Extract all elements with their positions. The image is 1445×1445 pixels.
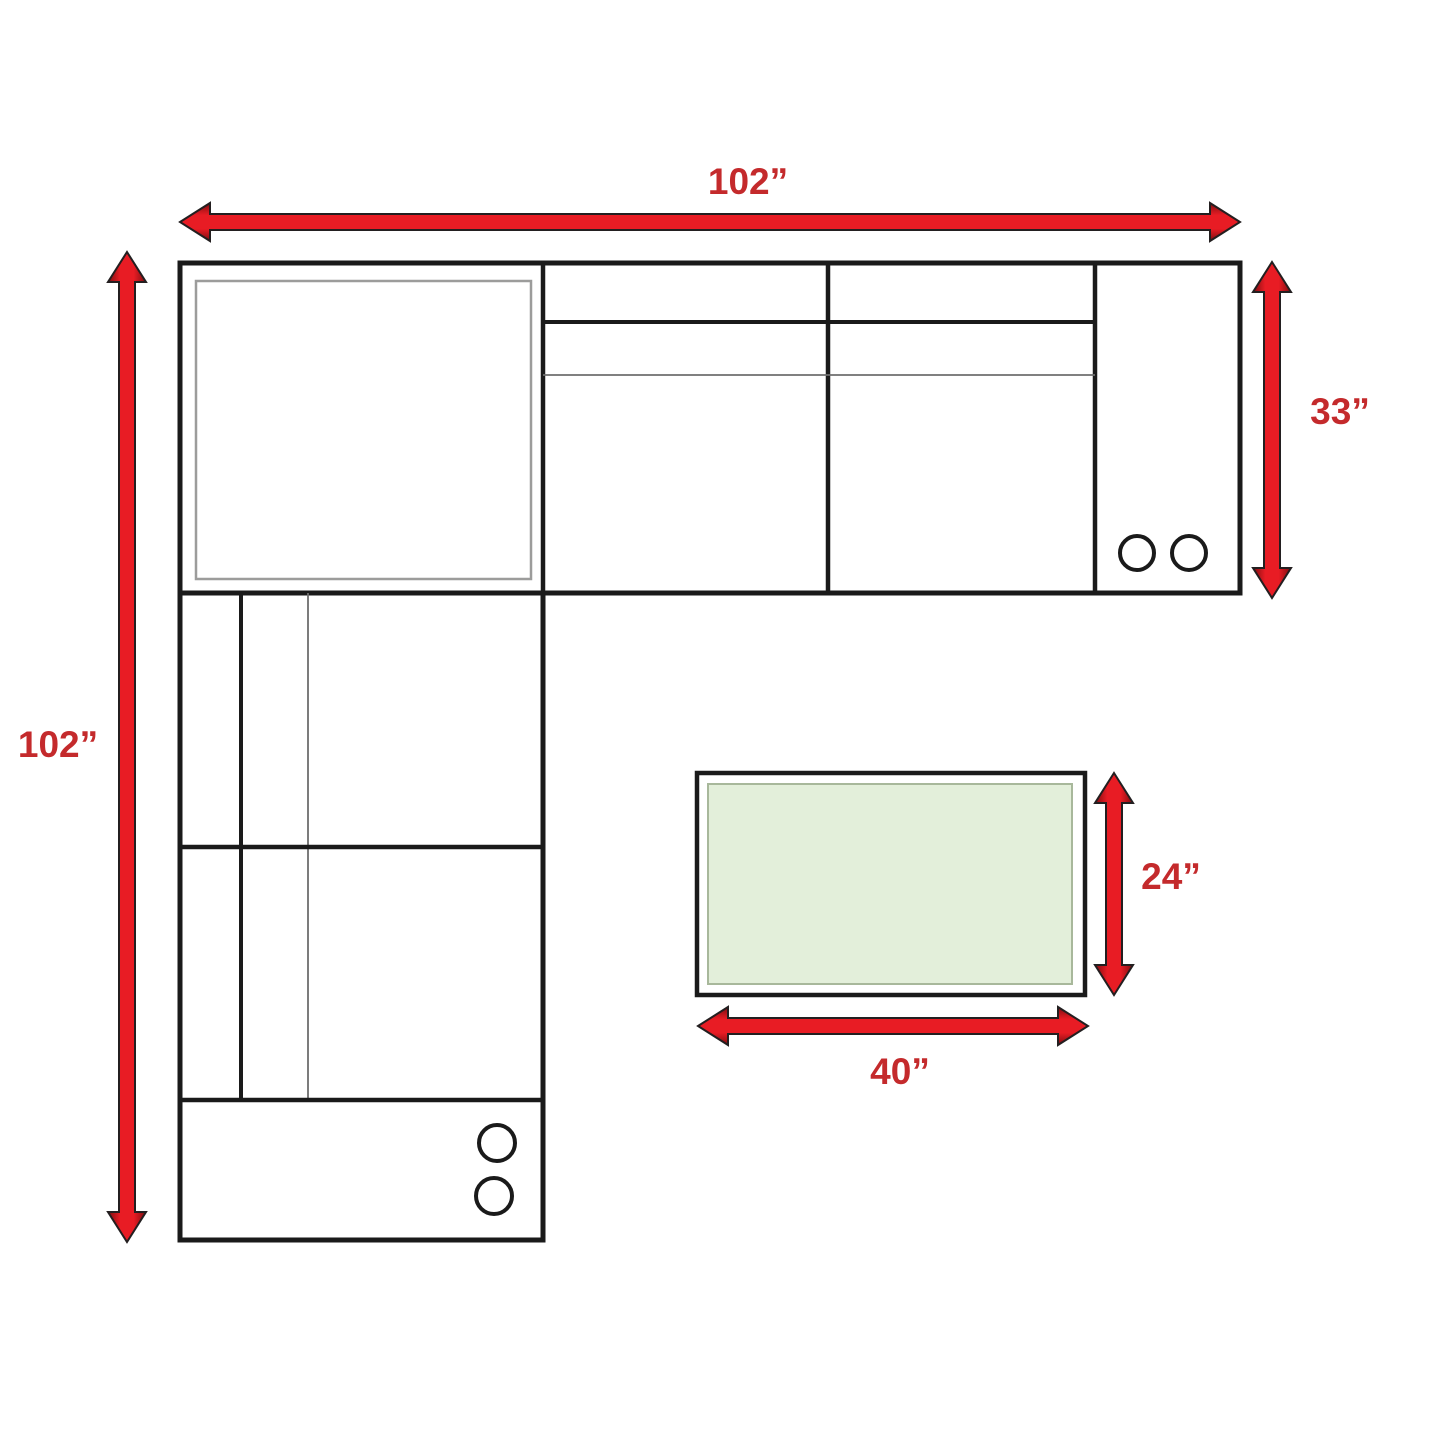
depth-dimension-arrow-icon [108,252,146,1242]
sectional-dimension-diagram: 102” 102” 33” 24” 40” [0,0,1445,1445]
table-depth-label: 24” [1141,856,1201,897]
diagram-canvas: 102” 102” 33” 24” 40” [0,0,1445,1445]
cup-holder-icon [476,1178,512,1214]
sectional-top-section [180,263,1240,593]
side-depth-dimension-arrow-icon [1253,262,1291,598]
sectional-side-depth-label: 33” [1310,391,1370,432]
sectional-sofa [180,263,1240,1240]
width-dimension-arrow-icon [180,203,1240,241]
cup-holder-icon [1120,536,1154,570]
sectional-width-label: 102” [708,161,788,202]
coffee-table [697,773,1085,995]
cup-holder-icon [479,1125,515,1161]
cup-holder-icon [1172,536,1206,570]
table-width-label: 40” [870,1051,930,1092]
sectional-depth-label: 102” [18,724,98,765]
coffee-table-top-surface [708,784,1072,984]
table-depth-dimension-arrow-icon [1095,773,1133,995]
table-width-dimension-arrow-icon [698,1007,1088,1045]
